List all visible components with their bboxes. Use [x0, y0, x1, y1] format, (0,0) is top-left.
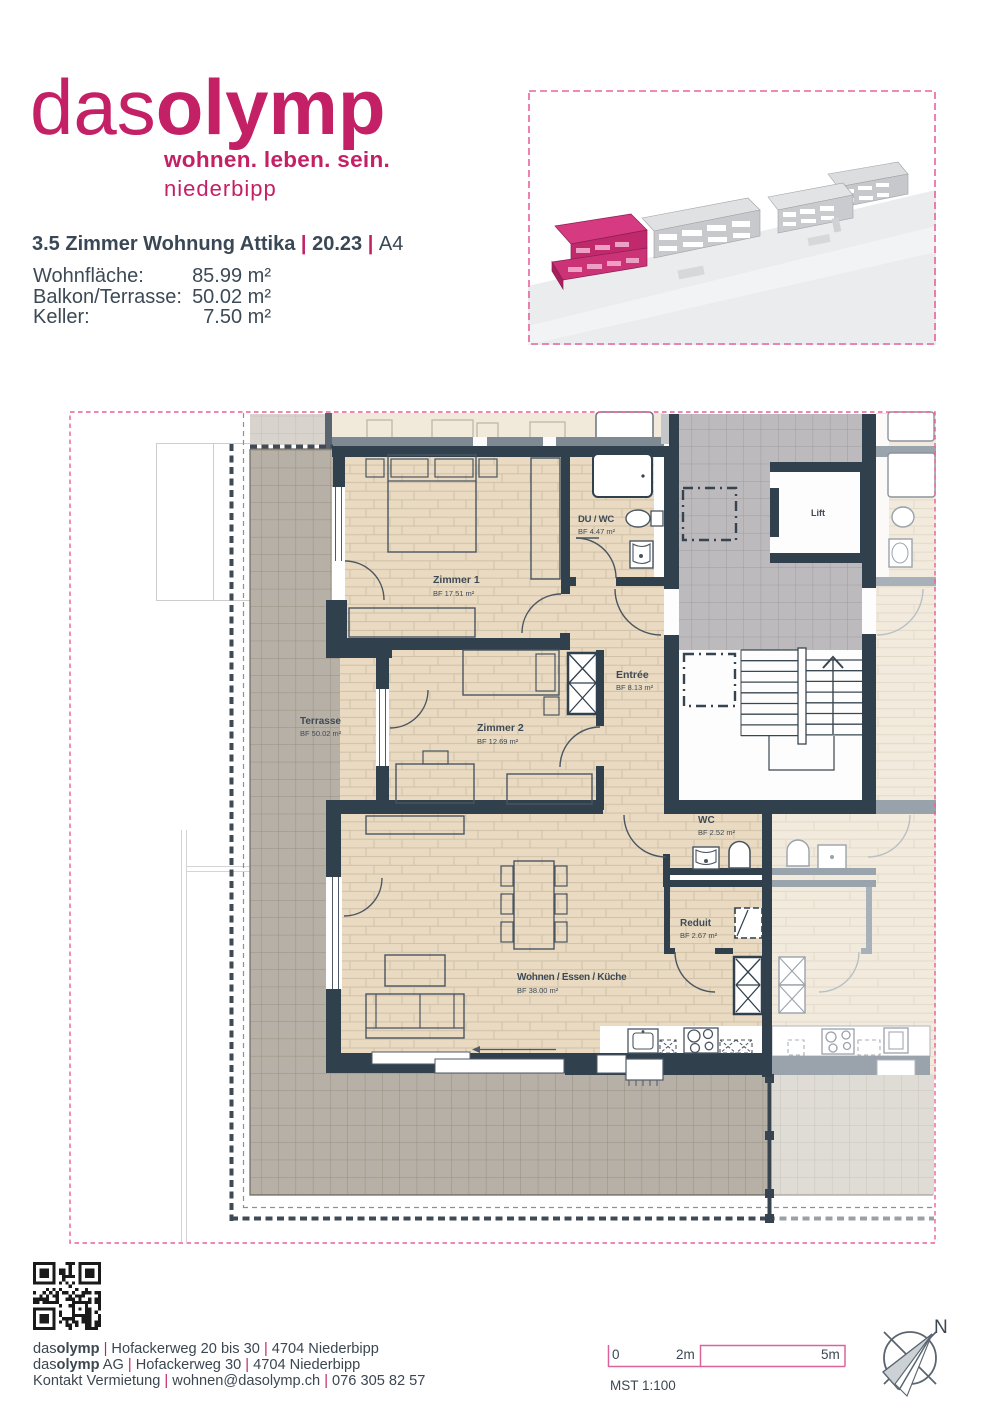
svg-text:BF 4.47 m²: BF 4.47 m²: [578, 527, 616, 536]
svg-text:BF 38.00 m²: BF 38.00 m²: [517, 986, 559, 995]
svg-text:BF 12.69 m²: BF 12.69 m²: [477, 737, 519, 746]
svg-text:0: 0: [612, 1347, 620, 1362]
svg-text:BF 8.13 m²: BF 8.13 m²: [616, 683, 654, 692]
svg-text:BF 2.67 m²: BF 2.67 m²: [680, 931, 718, 940]
svg-text:WC: WC: [698, 815, 715, 826]
svg-text:BF 50.02 m²: BF 50.02 m²: [300, 729, 342, 738]
svg-text:DU / WC: DU / WC: [578, 514, 614, 525]
svg-text:Wohnen / Essen / Küche: Wohnen / Essen / Küche: [517, 972, 627, 983]
svg-text:Zimmer 2: Zimmer 2: [477, 722, 524, 734]
svg-text:BF 2.52 m²: BF 2.52 m²: [698, 828, 736, 837]
svg-text:Lift: Lift: [811, 508, 825, 518]
svg-text:Zimmer 1: Zimmer 1: [433, 574, 480, 586]
svg-text:MST 1:100: MST 1:100: [610, 1378, 676, 1393]
svg-text:5m: 5m: [821, 1347, 840, 1362]
svg-text:2m: 2m: [676, 1347, 695, 1362]
svg-text:N: N: [934, 1317, 948, 1338]
svg-text:Entrée: Entrée: [616, 669, 649, 681]
svg-text:Terrasse: Terrasse: [300, 716, 341, 727]
svg-text:Reduit: Reduit: [680, 918, 712, 929]
svg-text:BF 17.51 m²: BF 17.51 m²: [433, 589, 475, 598]
